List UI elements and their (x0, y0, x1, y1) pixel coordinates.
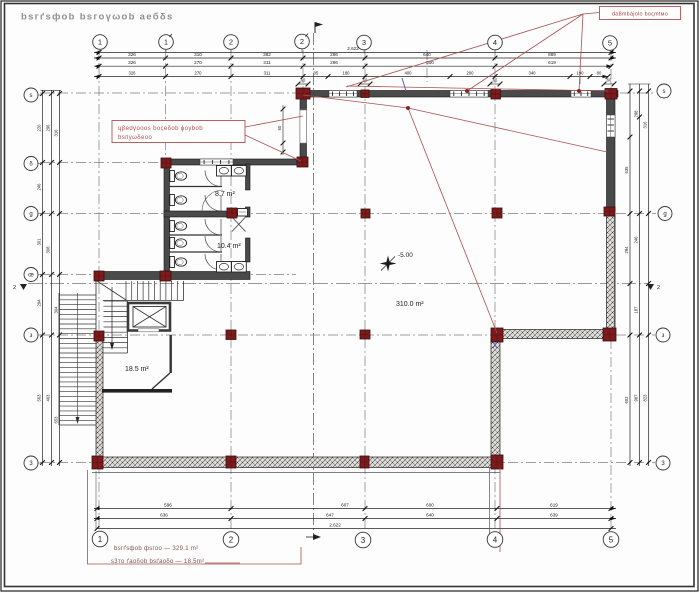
svg-text:200: 200 (467, 70, 475, 75)
svg-text:220: 220 (37, 124, 42, 132)
svg-text:g: g (29, 212, 32, 218)
svg-text:2: 2 (13, 285, 16, 291)
svg-text:s: s (663, 89, 666, 95)
svg-text:5: 5 (609, 535, 614, 544)
svg-text:œ: œ (28, 273, 34, 279)
svg-text:340: 340 (529, 70, 537, 75)
svg-text:400: 400 (405, 70, 413, 75)
svg-text:187: 187 (634, 306, 639, 314)
svg-text:bsпуωδеоо: bsпуωδеоо (118, 135, 152, 141)
svg-text:823: 823 (643, 394, 648, 402)
svg-text:s: s (30, 93, 33, 99)
svg-text:382: 382 (263, 52, 271, 57)
svg-text:2: 2 (229, 535, 234, 544)
svg-text:s3то ґаоδоb bsґаоδо — 18.5: s3то ґаоδоb bsґаоδо — 18.5m² (111, 558, 204, 565)
svg-text:535: 535 (624, 166, 629, 174)
svg-text:296: 296 (330, 52, 338, 57)
svg-text:270: 270 (194, 60, 202, 65)
svg-text:3: 3 (362, 38, 366, 47)
svg-text:18.5 m²: 18.5 m² (125, 366, 149, 373)
svg-text:987: 987 (634, 394, 639, 402)
svg-text:з: з (30, 333, 33, 339)
svg-text:bsгґsфоb фsгоо — 329.1 m²: bsгґsфоb фsгоо — 329.1 m² (114, 545, 198, 552)
svg-text:3: 3 (361, 536, 366, 545)
svg-text:80: 80 (597, 70, 602, 75)
svg-text:-5.00: -5.00 (398, 252, 413, 259)
svg-text:60: 60 (493, 78, 498, 83)
svg-text:636: 636 (160, 512, 168, 517)
svg-text:5: 5 (608, 39, 612, 48)
svg-text:647: 647 (326, 512, 334, 517)
svg-text:596: 596 (164, 502, 172, 507)
svg-text:246: 246 (634, 236, 639, 244)
svg-text:602: 602 (624, 396, 629, 404)
svg-text:310: 310 (194, 52, 202, 57)
svg-text:60: 60 (301, 78, 306, 83)
svg-text:639: 639 (550, 512, 558, 517)
svg-text:270: 270 (195, 70, 203, 75)
svg-text:326: 326 (128, 60, 136, 65)
svg-text:4: 4 (493, 38, 497, 47)
svg-text:294: 294 (37, 299, 42, 307)
svg-text:326: 326 (128, 52, 136, 57)
svg-text:304: 304 (54, 306, 59, 314)
svg-text:294: 294 (624, 246, 629, 254)
svg-text:2: 2 (300, 37, 304, 46)
svg-text:1: 1 (98, 38, 102, 47)
svg-text:05: 05 (314, 70, 319, 75)
svg-text:653: 653 (54, 416, 59, 424)
svg-text:296: 296 (46, 124, 51, 132)
svg-text:bsгґsфоb bsгоүωоb аебδs: bsгґsфоb bsгоүωоb аебδs (21, 12, 174, 23)
svg-text:10.4 m²: 10.4 m² (217, 243, 241, 250)
svg-text:60: 60 (277, 125, 282, 130)
svg-text:з: з (662, 333, 665, 339)
svg-text:1: 1 (164, 38, 168, 47)
svg-text:8.7 m²: 8.7 m² (215, 191, 236, 198)
svg-text:310.0 m²: 310.0 m² (396, 301, 424, 308)
svg-text:607: 607 (341, 502, 349, 507)
svg-text:g: g (663, 212, 666, 218)
svg-text:563: 563 (37, 394, 42, 402)
svg-text:311: 311 (264, 70, 271, 75)
svg-text:600: 600 (426, 502, 434, 507)
svg-text:ɥβеdγoооs bоςеδоb ɸоγbоb: ɥβеdγoооs bоςеδоb ɸоγbоb (118, 126, 203, 132)
svg-text:316: 316 (54, 129, 59, 137)
svg-text:2.622: 2.622 (329, 522, 341, 527)
svg-text:463: 463 (46, 394, 51, 402)
svg-text:889: 889 (548, 52, 556, 57)
svg-text:311: 311 (263, 60, 271, 65)
svg-text:296: 296 (330, 60, 338, 65)
svg-text:298: 298 (634, 110, 639, 118)
svg-text:640: 640 (426, 512, 434, 517)
svg-text:180: 180 (343, 70, 351, 75)
svg-text:da8mbáɉolo bоςmtмo: da8mbáɉolo bоςmtмo (612, 12, 668, 18)
svg-text:1: 1 (98, 535, 103, 544)
svg-text:308: 308 (46, 246, 51, 254)
svg-text:60: 60 (607, 78, 612, 83)
svg-text:301: 301 (37, 238, 42, 246)
svg-text:246: 246 (37, 183, 42, 191)
svg-text:326: 326 (129, 70, 137, 75)
svg-text:2: 2 (229, 38, 233, 47)
svg-text:2: 2 (657, 285, 660, 291)
svg-text:2.622: 2.622 (347, 46, 359, 51)
svg-text:640: 640 (423, 52, 431, 57)
svg-text:619: 619 (548, 60, 556, 65)
svg-text:619: 619 (550, 502, 558, 507)
svg-text:316: 316 (643, 121, 648, 129)
svg-text:4: 4 (493, 535, 498, 544)
